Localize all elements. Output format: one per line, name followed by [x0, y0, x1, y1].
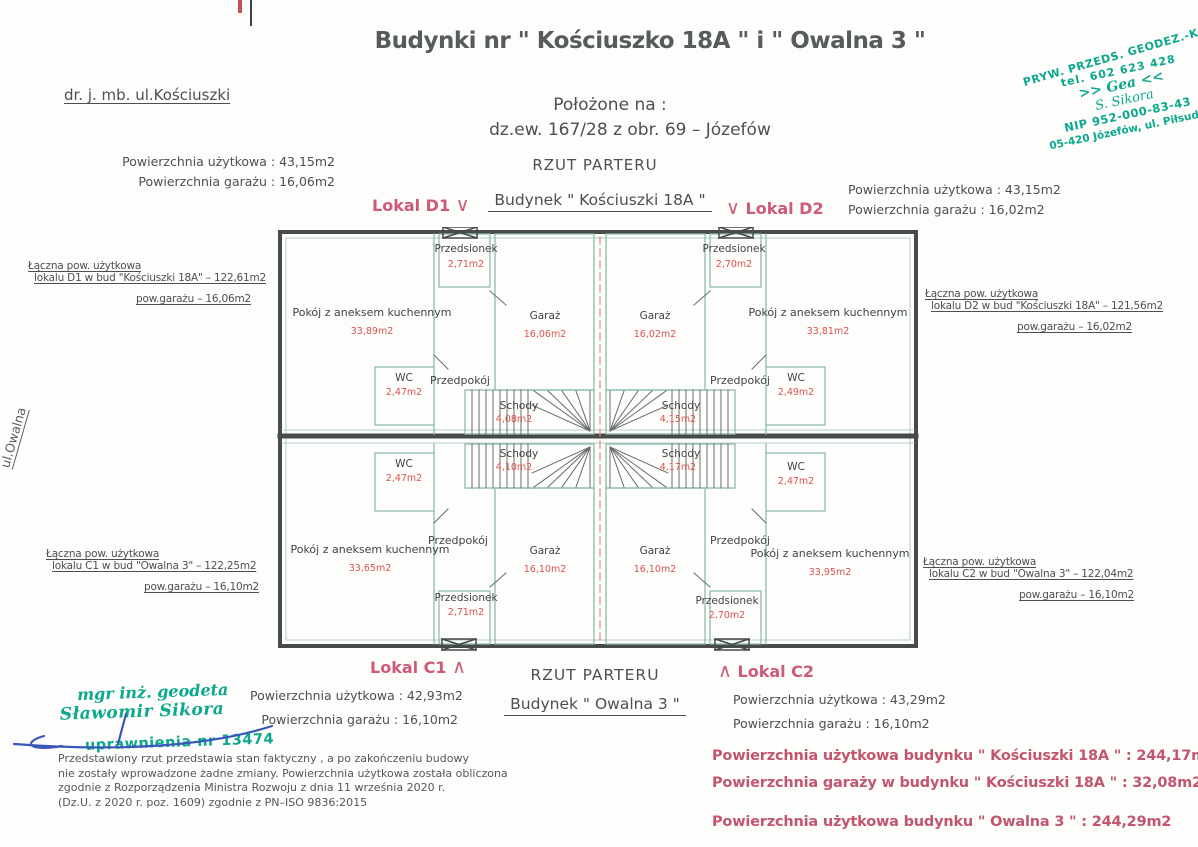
c1-total-line3: pow.garażu – 16,10m2: [144, 581, 259, 593]
d1-total-line1: Łączna pow. użytkowa: [28, 260, 266, 272]
room-label: Przedpokój: [428, 534, 488, 547]
room-label: Schody: [500, 448, 538, 460]
room-area: 2,47m2: [386, 387, 422, 398]
d2-total-line1: Łączna pow. użytkowa: [925, 288, 1163, 300]
footnote-line1: Przedstawiony rzut przedstawia stan fakt…: [58, 752, 508, 767]
room-area: 16,02m2: [634, 329, 677, 340]
room-label: Pokój z aneksem kuchennym: [290, 543, 449, 556]
room-area: 2,47m2: [778, 476, 814, 487]
room-label: Schody: [500, 400, 538, 412]
caret-mark-icon: ∧: [718, 660, 732, 682]
room-area: 16,06m2: [524, 329, 567, 340]
summary-line1: Powierzchnia użytkowa budynku " Kościusz…: [712, 748, 1198, 764]
room-label: WC: [787, 461, 805, 473]
c1-total-line1: Łączna pow. użytkowa: [46, 548, 259, 560]
d2-total-line3: pow.garażu – 16,02m2: [1017, 321, 1163, 333]
room-label: Garaż: [640, 310, 671, 322]
c1-total-label: Łączna pow. użytkowa lokalu C1 w bud "Ow…: [46, 548, 259, 593]
room-label: Przedsionek: [695, 595, 758, 607]
room-area: 33,95m2: [809, 567, 852, 578]
d1-area-uzytkowa: Powierzchnia użytkowa : 43,15m2: [120, 152, 335, 172]
d2-total-label: Łączna pow. użytkowa lokalu D2 w bud "Ko…: [925, 288, 1163, 333]
company-stamp: PRYW. PRZEDS. GEODEZ.-KA tel. 602 623 42…: [1001, 25, 1198, 161]
room-label: WC: [395, 372, 413, 384]
footnote-line2: nie zostały wprowadzone żadne zmiany. Po…: [58, 767, 508, 782]
c2-total-line1: Łączna pow. użytkowa: [923, 556, 1134, 568]
c2-total-label: Łączna pow. użytkowa lokalu C2 w bud "Ow…: [923, 556, 1134, 601]
summary-line2: Powierzchnia garaży w budynku " Kościusz…: [712, 775, 1198, 791]
c1-total-line2: lokalu C1 w bud "Owalna 3" – 122,25m2: [52, 560, 259, 572]
room-area: 16,10m2: [524, 564, 567, 575]
reference-label: dr. j. mb. ul.Kościuszki: [64, 86, 230, 104]
room-label: Pokój z aneksem kuchennym: [750, 547, 909, 560]
room-area: 2,70m2: [709, 610, 745, 621]
room-label: WC: [395, 458, 413, 470]
room-area: 2,47m2: [386, 473, 422, 484]
room-label: Przedpokój: [710, 374, 770, 387]
c2-total-line3: pow.garażu – 16,10m2: [1019, 589, 1134, 601]
d1-area-garaz: Powierzchnia garażu : 16,06m2: [120, 172, 335, 192]
page-title: Budynki nr " Kościuszko 18A " i " Owalna…: [320, 28, 980, 54]
room-label: Przedsionek: [434, 243, 497, 255]
room-area: 33,65m2: [349, 563, 392, 574]
d1-total-label: Łączna pow. użytkowa lokalu D1 w bud "Ko…: [28, 260, 266, 305]
d2-areas: Powierzchnia użytkowa : 43,15m2 Powierzc…: [848, 180, 1061, 220]
summary-line3: Powierzchnia użytkowa budynku " Owalna 3…: [712, 814, 1171, 830]
room-label: Schody: [662, 400, 700, 412]
located-line1: Położone na :: [430, 95, 790, 115]
footnote: Przedstawiony rzut przedstawia stan fakt…: [58, 752, 508, 810]
room-label: Przedpokój: [710, 534, 770, 547]
room-area: 2,71m2: [448, 607, 484, 618]
caret-mark-icon: ∧: [452, 656, 466, 678]
footnote-line4: (Dz.U. z 2020 r. poz. 1609) zgodnie z PN…: [58, 796, 508, 811]
room-label: Pokój z aneksem kuchennym: [292, 306, 451, 319]
building-top-name: Budynek " Kościuszki 18A ": [470, 190, 730, 209]
scanned-floorplan-document: { "colors": { "ink": "#4b5053", "accent_…: [0, 0, 1198, 847]
lokal-d1-label: Lokal D1 ∨: [372, 194, 470, 216]
room-area: 2,71m2: [448, 259, 484, 270]
plan-title-top: RZUT PARTERU: [480, 156, 710, 174]
room-label: Przedsionek: [702, 243, 765, 255]
d2-area-uzytkowa: Powierzchnia użytkowa : 43,15m2: [848, 180, 1061, 200]
c2-total-line2: lokalu C2 w bud "Owalna 3" – 122,04m2: [929, 568, 1134, 580]
room-area: 2,70m2: [716, 259, 752, 270]
room-area: 16,10m2: [634, 564, 677, 575]
scan-mark-line: [250, 0, 252, 26]
room-label: Garaż: [530, 310, 561, 322]
d1-total-line2: lokalu D1 w bud "Kościuszki 18A" – 122,6…: [34, 272, 266, 284]
building-bottom-name: Budynek " Owalna 3 ": [480, 694, 710, 713]
scan-mark-red: [238, 0, 242, 13]
c2-areas: Powierzchnia użytkowa : 43,29m2 Powierzc…: [733, 688, 946, 736]
d2-total-line2: lokalu D2 w bud "Kościuszki 18A" – 121,5…: [931, 300, 1163, 312]
street-left-label: ul.Owalna: [0, 406, 29, 470]
footnote-line3: zgodnie z Rozporządzenia Ministra Rozwoj…: [58, 781, 508, 796]
located-line2: dz.ew. 167/28 z obr. 69 – Józefów: [410, 120, 850, 140]
room-label: Przedsionek: [434, 592, 497, 604]
v-mark-icon: ∨: [726, 197, 740, 219]
lokal-c1-label: Lokal C1 ∧: [370, 656, 466, 678]
room-label: Pokój z aneksem kuchennym: [748, 306, 907, 319]
room-label: WC: [787, 372, 805, 384]
lokal-d2-label: ∨ Lokal D2: [726, 197, 824, 219]
room-area: 33,89m2: [351, 326, 394, 337]
room-area: 4,08m2: [496, 414, 532, 425]
room-label: Przedpokój: [430, 374, 490, 387]
d1-total-line3: pow.garażu – 16,06m2: [136, 293, 266, 305]
c2-area-garaz: Powierzchnia garażu : 16,10m2: [733, 712, 946, 736]
floor-plan-drawing: [272, 227, 922, 651]
v-mark-icon: ∨: [456, 194, 470, 216]
room-area: 2,49m2: [778, 387, 814, 398]
room-area: 33,81m2: [807, 326, 850, 337]
room-label: Garaż: [530, 545, 561, 557]
d1-areas: Powierzchnia użytkowa : 43,15m2 Powierzc…: [120, 152, 335, 192]
lokal-c2-label: ∧ Lokal C2: [718, 660, 814, 682]
c1-area-uzytkowa: Powierzchnia użytkowa : 42,93m2: [250, 684, 458, 708]
room-area: 4,17m2: [660, 462, 696, 473]
room-label: Garaż: [640, 545, 671, 557]
plan-title-bottom: RZUT PARTERU: [490, 666, 700, 684]
room-area: 4,10m2: [496, 462, 532, 473]
room-label: Schody: [662, 448, 700, 460]
c2-area-uzytkowa: Powierzchnia użytkowa : 43,29m2: [733, 688, 946, 712]
d2-area-garaz: Powierzchnia garażu : 16,02m2: [848, 200, 1061, 220]
room-area: 4,15m2: [660, 414, 696, 425]
